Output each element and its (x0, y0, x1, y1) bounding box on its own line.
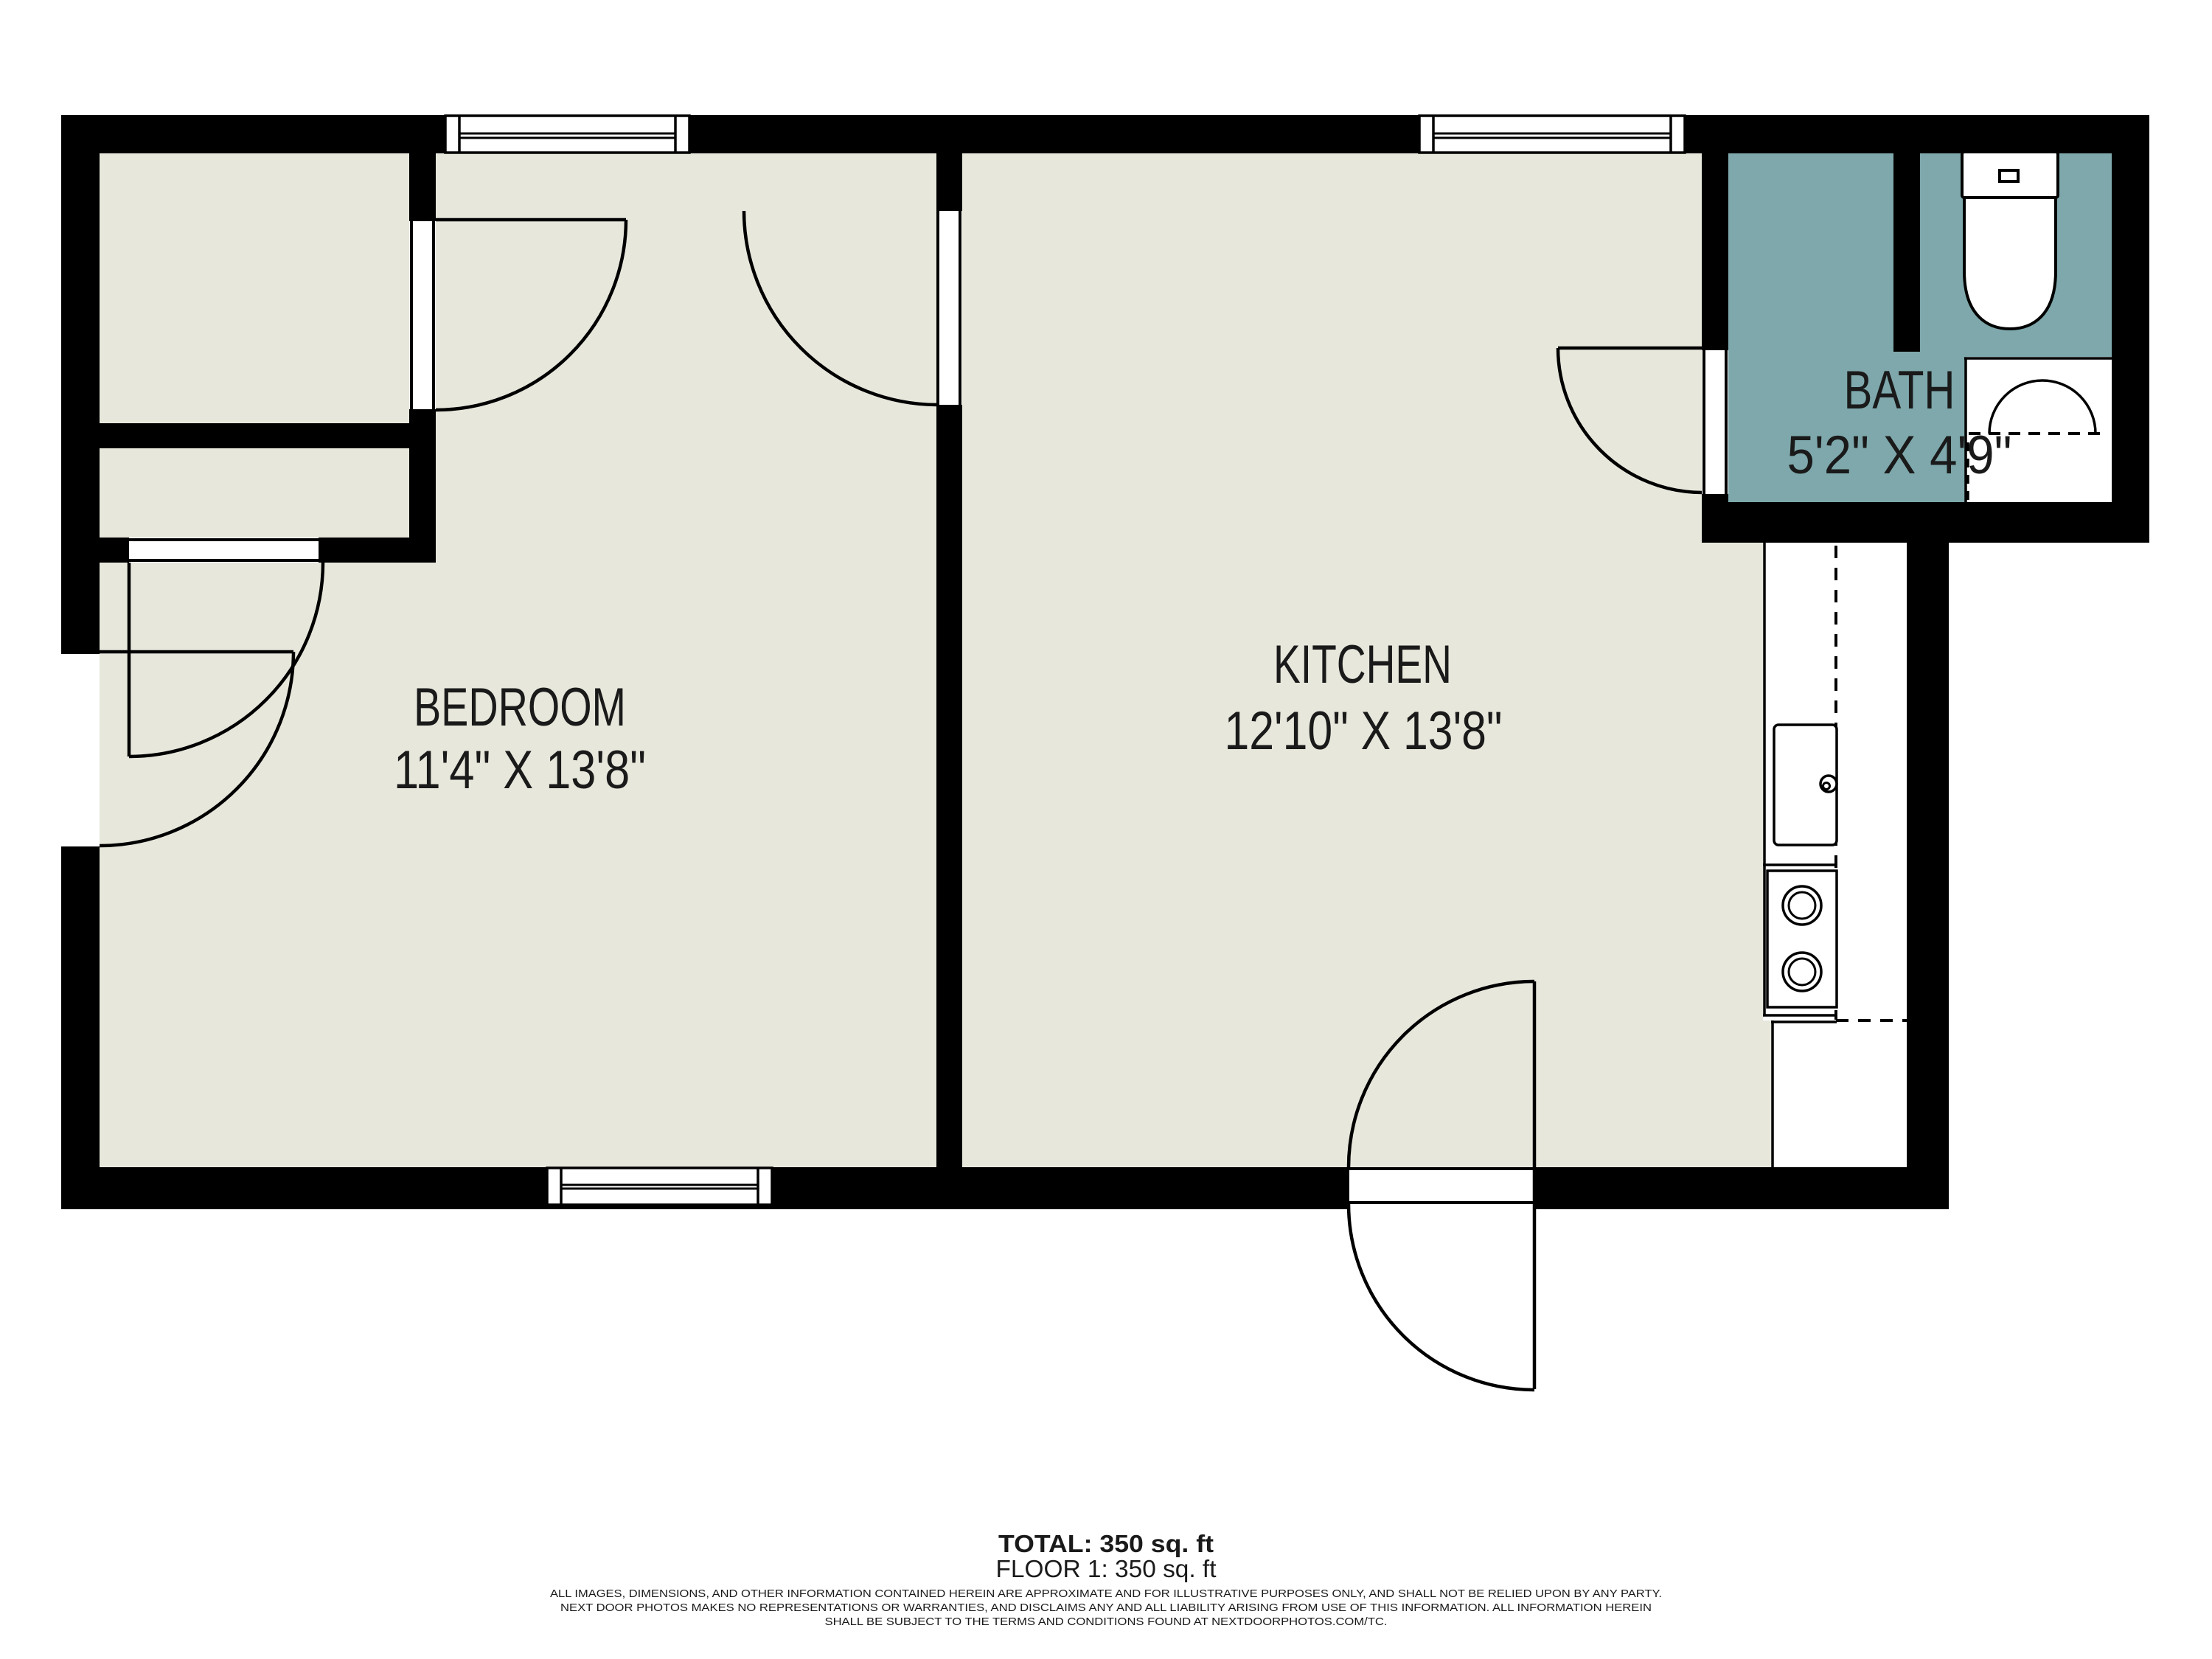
svg-text:11'4" X 13'8": 11'4" X 13'8" (394, 740, 646, 800)
svg-text:FLOOR 1: 350 sq. ft: FLOOR 1: 350 sq. ft (996, 1555, 1217, 1582)
svg-text:BATH: BATH (1844, 361, 1955, 420)
svg-text:BEDROOM: BEDROOM (414, 678, 626, 737)
svg-text:SHALL BE SUBJECT TO THE TERMS: SHALL BE SUBJECT TO THE TERMS AND CONDIT… (825, 1616, 1388, 1628)
svg-text:5'2" X 4'9": 5'2" X 4'9" (1787, 425, 2012, 485)
svg-text:12'10" X 13'8": 12'10" X 13'8" (1225, 701, 1503, 761)
svg-text:ALL IMAGES, DIMENSIONS, AND OT: ALL IMAGES, DIMENSIONS, AND OTHER INFORM… (550, 1588, 1662, 1600)
svg-text:NEXT DOOR PHOTOS MAKES NO REPR: NEXT DOOR PHOTOS MAKES NO REPRESENTATION… (560, 1602, 1652, 1614)
svg-text:TOTAL: 350 sq. ft: TOTAL: 350 sq. ft (998, 1530, 1214, 1557)
svg-text:KITCHEN: KITCHEN (1273, 635, 1452, 695)
